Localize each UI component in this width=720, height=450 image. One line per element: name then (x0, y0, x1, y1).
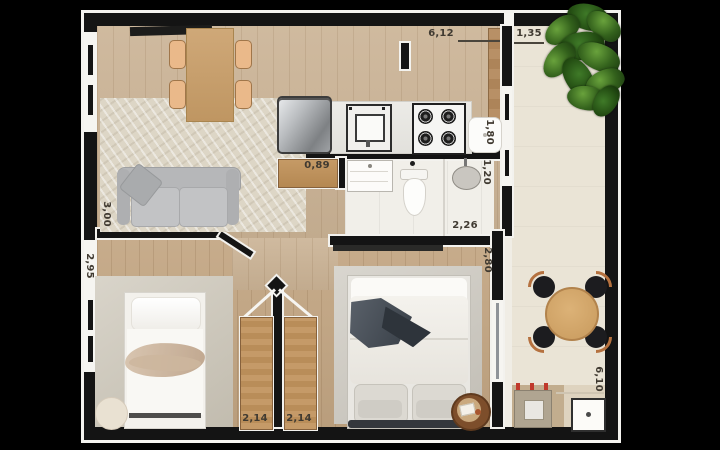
bedside-table (451, 393, 491, 431)
pouf (95, 397, 128, 430)
dim-bathroom-length: 2,26 (448, 221, 482, 231)
toilet-button (410, 161, 415, 166)
dim-bathroom-width: 1,20 (481, 155, 491, 189)
single-bed (124, 292, 206, 429)
bedrooms-divider-wall (273, 284, 282, 427)
dining-chair (235, 40, 252, 69)
balcony-sill (503, 231, 512, 427)
floor-plan-canvas: 6,12 1,35 0,89 1,80 1,20 2,26 2,80 3,00 … (0, 0, 720, 450)
bed-pillow-inner (358, 400, 402, 418)
sofa-seat-cushion (179, 187, 228, 227)
dim-line (514, 42, 544, 44)
potted-plant (533, 2, 623, 122)
kitchen-window-glass2 (505, 150, 509, 176)
column-pier (401, 43, 409, 69)
bed-foot-bar (129, 413, 201, 418)
burner (418, 109, 433, 124)
bed-pillow (131, 297, 201, 331)
dim-bedroom1-door: 2,14 (238, 414, 272, 424)
dim-kitchen-window: 1,80 (484, 115, 494, 149)
bathroom-vanity (347, 160, 393, 192)
vanity-faucet (368, 164, 372, 168)
patio-table (545, 287, 599, 341)
laundry-item (544, 383, 548, 390)
vanity-line (350, 171, 388, 172)
bedroom1-window-glass2 (88, 336, 93, 362)
toilet (398, 161, 428, 215)
shower-glass-partition (443, 159, 445, 236)
dining-table (186, 28, 234, 122)
dim-balcony-length: 6,10 (593, 362, 603, 396)
laundry-item (530, 383, 534, 390)
living-window-glass2 (88, 85, 93, 115)
toilet-bowl (403, 178, 426, 216)
dim-bedroom2-door: 2,14 (282, 414, 316, 424)
shower-basin (452, 166, 481, 190)
refrigerator (277, 96, 332, 154)
vanity-line (350, 181, 388, 182)
bedroom2-closet-bar (333, 245, 443, 251)
burner (441, 131, 456, 146)
dim-line (458, 40, 500, 42)
dining-chair (169, 80, 186, 109)
laundry-drain (586, 412, 591, 417)
stove (412, 103, 466, 155)
dim-bedroom2-depth: 2,80 (482, 243, 492, 277)
dining-chair (169, 40, 186, 69)
washing-machine (514, 390, 552, 428)
balcony-door-gap (504, 13, 514, 26)
bathroom-wall-left (337, 158, 345, 188)
kitchen-sink (346, 104, 392, 152)
tray-dot (475, 409, 481, 415)
dim-living-left: 3,00 (101, 197, 111, 231)
living-window-glass (88, 45, 93, 75)
sink-corner-dot (349, 107, 352, 110)
sink-corner-dot (382, 107, 385, 110)
dim-balcony-width: 1,35 (512, 29, 546, 39)
hallway-floor (232, 238, 338, 290)
dim-bedroom1-left: 2,95 (84, 249, 94, 283)
bedroom2-window-glass (496, 303, 499, 379)
washer-lid (524, 400, 544, 420)
headboard (348, 420, 470, 428)
dim-hall-width: 0,89 (300, 161, 334, 171)
laundry-sink (571, 398, 606, 432)
burner (418, 131, 433, 146)
burner (441, 109, 456, 124)
bathroom-wall-bottom (330, 236, 502, 245)
bedroom1-window-glass (88, 300, 93, 330)
sink-faucet (366, 140, 370, 147)
shower-faucet (464, 158, 467, 166)
patio-set (533, 276, 607, 348)
dining-chair (235, 80, 252, 109)
kitchen-window-glass (505, 94, 509, 120)
laundry-item (516, 383, 520, 390)
sink-basin (355, 114, 385, 142)
dim-kitchen-width: 6,12 (424, 29, 458, 39)
sofa (117, 167, 239, 227)
